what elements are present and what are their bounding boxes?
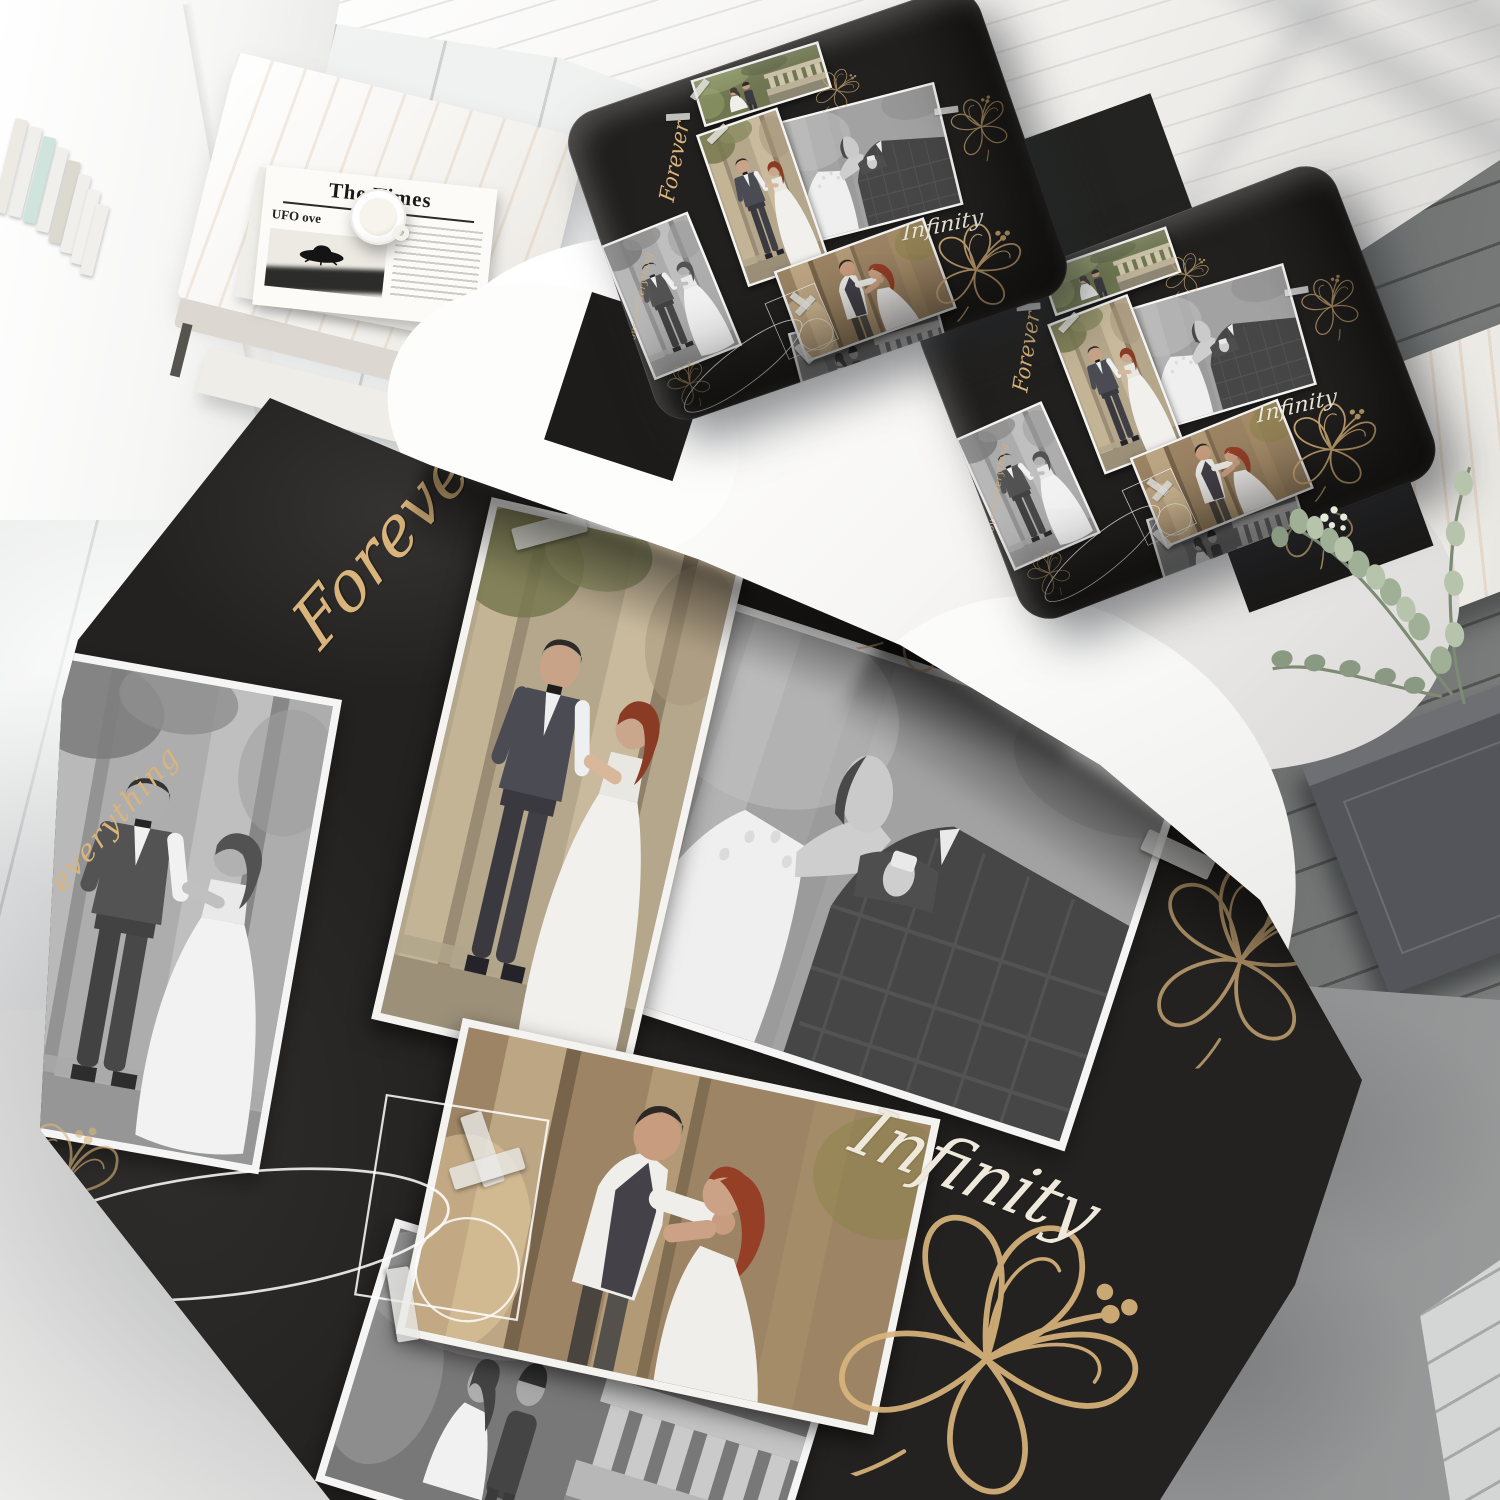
ufo-illustration-icon bbox=[295, 239, 349, 270]
washi-tape bbox=[707, 123, 729, 144]
newspaper-photo-smear bbox=[264, 266, 387, 295]
wedding-photo-standing-color bbox=[696, 107, 830, 287]
empty-photo-frame-outline bbox=[765, 283, 839, 360]
script-forever: Forever bbox=[654, 119, 694, 204]
washi-tape bbox=[666, 113, 690, 121]
embrace-couple-art bbox=[776, 85, 961, 243]
washi-tape bbox=[1058, 312, 1080, 334]
wedding-photo-standing-color bbox=[1047, 294, 1185, 475]
gold-flower-icon bbox=[807, 60, 868, 115]
gold-flower-icon bbox=[650, 346, 727, 418]
washi-tape bbox=[1152, 529, 1173, 550]
empty-photo-frame-outline bbox=[1122, 468, 1197, 546]
kissing-couple-art bbox=[777, 220, 954, 359]
gold-flower-icon bbox=[1157, 246, 1216, 299]
wedding-photo-embrace-bw bbox=[773, 82, 964, 246]
newspaper-headline: UFO ove bbox=[271, 206, 322, 227]
washi-tape bbox=[690, 78, 710, 100]
washi-tape bbox=[1152, 480, 1173, 502]
script-infinity: Infinity bbox=[902, 204, 983, 246]
washi-tape bbox=[794, 343, 815, 364]
washi-tape bbox=[1284, 286, 1309, 297]
standing-couple-art bbox=[699, 110, 826, 284]
washi-tape bbox=[934, 105, 959, 115]
nightstand-leg bbox=[170, 323, 193, 378]
eucalyptus-plant bbox=[1186, 369, 1500, 747]
washi-tape bbox=[1146, 478, 1169, 497]
gold-flower-icon bbox=[1277, 253, 1383, 353]
washi-tape bbox=[789, 292, 812, 311]
script-forever: Forever bbox=[1008, 309, 1045, 394]
bedroom-product-scene: The Times UFO ove bbox=[0, 0, 1500, 1500]
standing-couple-art bbox=[1050, 297, 1181, 472]
gold-flower-icon bbox=[1010, 536, 1087, 607]
washi-tape bbox=[794, 295, 816, 317]
